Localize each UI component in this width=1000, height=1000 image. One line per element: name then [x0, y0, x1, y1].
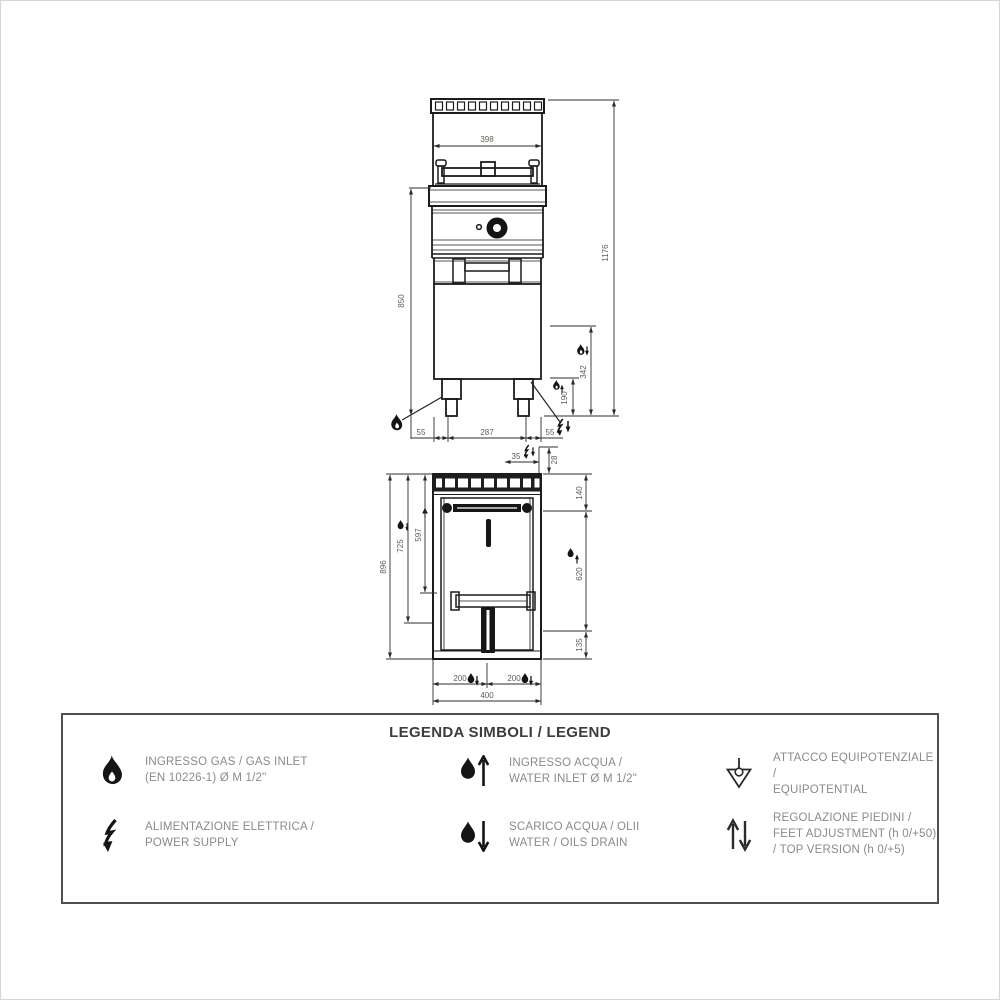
dim-right-lower: 135: [575, 638, 584, 652]
power-supply-icon: [91, 819, 131, 853]
legend-title: LEGENDA SIMBOLI / LEGEND: [63, 724, 937, 741]
down-arrow-marker-icon: [585, 346, 589, 355]
legend-item-water-inlet: INGRESSO ACQUA / WATER INLET Ø M 1/2": [455, 755, 637, 788]
legend-item-feet-adjustment: REGOLAZIONE PIEDINI / FEET ADJUSTMENT (h…: [719, 811, 936, 859]
front-view-dimension-labels: 398 1176 850 342 190 55 287 55: [397, 135, 610, 437]
lid-handle-top: [442, 503, 532, 513]
dim-gas-height-lower: 190: [560, 391, 569, 405]
dim-total-height: 1176: [601, 244, 610, 262]
gas-flame-icon: [91, 755, 131, 787]
gas-flame-marker-icon: [577, 344, 584, 355]
gas-flame-marker-icon: [553, 380, 560, 390]
crown-rail: [431, 99, 544, 113]
dim-top-offset-x: 35: [512, 452, 521, 461]
cabinet-body: [434, 284, 541, 379]
drain-assembly: [451, 592, 535, 653]
power-marker-icon: [524, 445, 529, 459]
down-arrow-marker-icon: [531, 447, 535, 456]
legend-item-water-drain: SCARICO ACQUA / OLII WATER / OILS DRAIN: [455, 819, 640, 852]
water-drain-icon: [455, 819, 495, 852]
control-knob: [477, 218, 508, 239]
legend-item-text: INGRESSO GAS / GAS INLET (EN 10226-1) Ø …: [145, 755, 308, 787]
legend-item-text: ALIMENTAZIONE ELETTRICA / POWER SUPPLY: [145, 820, 314, 852]
dim-total-depth: 896: [379, 560, 388, 574]
worktop: [429, 186, 546, 206]
dim-foot-offset-left: 55: [417, 428, 426, 437]
dim-right-middle: 620: [575, 567, 584, 581]
legend-item-text: SCARICO ACQUA / OLII WATER / OILS DRAIN: [509, 820, 640, 852]
thermostat-probe: [486, 519, 491, 547]
water-inlet-icon: [455, 755, 495, 788]
legend-item-text: REGOLAZIONE PIEDINI / FEET ADJUSTMENT (h…: [773, 811, 936, 859]
power-marker-icon: [557, 419, 563, 436]
under-counter-recess: [434, 258, 541, 284]
legend-item-equipotential: ATTACCO EQUIPOTENZIALE / EQUIPOTENTIAL: [719, 751, 937, 799]
down-arrow-marker-icon: [566, 421, 571, 433]
legend-item-gas-inlet: INGRESSO GAS / GAS INLET (EN 10226-1) Ø …: [91, 755, 308, 787]
dim-gas-height-upper: 342: [579, 365, 588, 379]
dim-inner-depth: 597: [414, 528, 423, 542]
dim-total-width: 400: [480, 691, 494, 700]
dim-right-upper: 140: [575, 486, 584, 500]
equipotential-icon: [719, 758, 759, 792]
front-view: [402, 99, 560, 422]
dim-width-top: 398: [480, 135, 494, 144]
water-drop-marker-icon: [398, 520, 404, 529]
dim-feet-span: 287: [480, 428, 494, 437]
dim-top-offset-y: 28: [550, 455, 559, 464]
water-drop-marker-icon: [568, 548, 574, 557]
spec-sheet-page: 398 1176 850 342 190 55 287 55: [0, 0, 1000, 1000]
gas-flame-marker-icon: [391, 414, 402, 430]
up-arrow-marker-icon: [575, 554, 579, 563]
dim-foot-offset-right: 55: [546, 428, 555, 437]
feet: [442, 379, 533, 416]
legend-item-text: ATTACCO EQUIPOTENZIALE / EQUIPOTENTIAL: [773, 751, 937, 799]
dim-worktop-height: 850: [397, 294, 406, 308]
water-drop-marker-icon: [522, 673, 529, 683]
dim-drain-depth: 725: [396, 539, 405, 553]
legend-item-power-supply: ALIMENTAZIONE ELETTRICA / POWER SUPPLY: [91, 819, 314, 853]
dim-drain-offset-right: 200: [507, 674, 521, 683]
feet-adjustment-icon: [719, 818, 759, 852]
top-view: [433, 474, 541, 659]
legend-item-text: INGRESSO ACQUA / WATER INLET Ø M 1/2": [509, 756, 637, 788]
dim-drain-offset-left: 200: [453, 674, 467, 683]
water-drop-marker-icon: [468, 673, 475, 683]
front-view-symbols: [391, 344, 589, 436]
pan-lid: [435, 160, 540, 184]
legend-box: LEGENDA SIMBOLI / LEGEND INGRESSO GAS / …: [61, 713, 939, 904]
rail-band-top: [433, 475, 541, 495]
